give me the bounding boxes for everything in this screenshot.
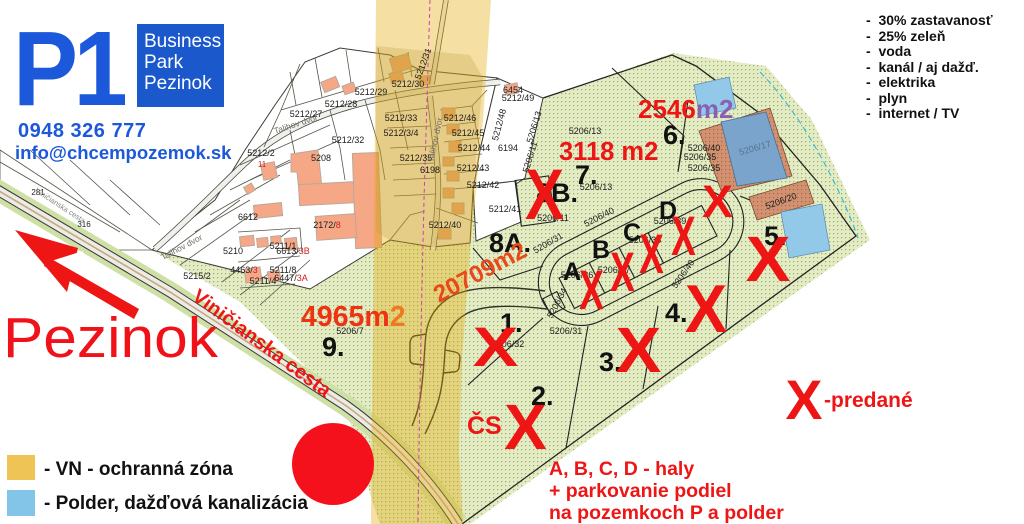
svg-text:6447/3A: 6447/3A: [274, 273, 308, 283]
svg-text:5208: 5208: [311, 153, 331, 163]
svg-text:X: X: [702, 177, 733, 227]
svg-text:3118 m2: 3118 m2: [559, 138, 658, 166]
svg-text:11: 11: [258, 160, 267, 169]
svg-text:9.: 9.: [322, 332, 345, 362]
svg-text:2546m2: 2546m2: [638, 94, 733, 124]
svg-text:4965m2: 4965m2: [301, 301, 406, 333]
svg-text:5210: 5210: [223, 246, 243, 256]
svg-text:X: X: [671, 205, 696, 268]
svg-text:4463/3: 4463/3: [230, 265, 258, 275]
svg-text:6612: 6612: [238, 212, 258, 222]
svg-text:5212/42: 5212/42: [467, 180, 500, 190]
svg-text:X: X: [639, 223, 664, 286]
svg-text:na pozemkoch P a polder: na pozemkoch P a polder: [549, 502, 784, 524]
svg-text:5215/2: 5215/2: [183, 271, 211, 281]
svg-text:5212/2: 5212/2: [247, 148, 275, 158]
svg-text:ČS: ČS: [467, 410, 502, 440]
svg-text:5212/45: 5212/45: [452, 128, 485, 138]
svg-text:5212/44: 5212/44: [458, 143, 491, 153]
svg-text:+ parkovanie podiel: + parkovanie podiel: [549, 480, 732, 502]
svg-text:6.: 6.: [663, 120, 686, 150]
svg-text:6194: 6194: [498, 143, 518, 153]
svg-text:5212/32: 5212/32: [332, 135, 365, 145]
svg-text:5212/3/4: 5212/3/4: [383, 128, 418, 138]
svg-text:A: A: [563, 258, 581, 286]
svg-text:X: X: [525, 154, 564, 234]
svg-text:5212/28: 5212/28: [325, 99, 358, 109]
svg-text:5206/13: 5206/13: [569, 126, 602, 136]
svg-text:5211/4: 5211/4: [250, 276, 277, 286]
svg-text:5206/35: 5206/35: [688, 163, 721, 173]
svg-text:5212/29: 5212/29: [355, 87, 388, 97]
svg-text:X: X: [786, 369, 823, 431]
svg-text:6613/3B: 6613/3B: [276, 246, 310, 256]
svg-text:5212/49: 5212/49: [502, 93, 535, 103]
svg-text:X: X: [504, 391, 547, 463]
svg-text:5212/33: 5212/33: [385, 113, 418, 123]
svg-text:X: X: [579, 259, 604, 322]
svg-text:X: X: [685, 271, 727, 347]
svg-text:2172/8: 2172/8: [313, 220, 341, 230]
svg-text:X: X: [746, 223, 791, 294]
svg-text:-predané: -predané: [824, 389, 913, 412]
svg-text:5206/31: 5206/31: [550, 326, 583, 336]
svg-text:6198: 6198: [420, 165, 440, 175]
svg-text:X: X: [616, 315, 662, 386]
svg-text:5212/43: 5212/43: [457, 163, 490, 173]
svg-text:5212/46: 5212/46: [444, 113, 477, 123]
svg-text:5206/35: 5206/35: [684, 152, 717, 162]
svg-text:X: X: [610, 241, 635, 304]
svg-text:5212/40: 5212/40: [429, 220, 462, 230]
svg-text:A, B, C, D - haly: A, B, C, D - haly: [549, 458, 694, 480]
svg-text:X: X: [473, 316, 519, 379]
svg-text:5212/41: 5212/41: [489, 204, 522, 214]
